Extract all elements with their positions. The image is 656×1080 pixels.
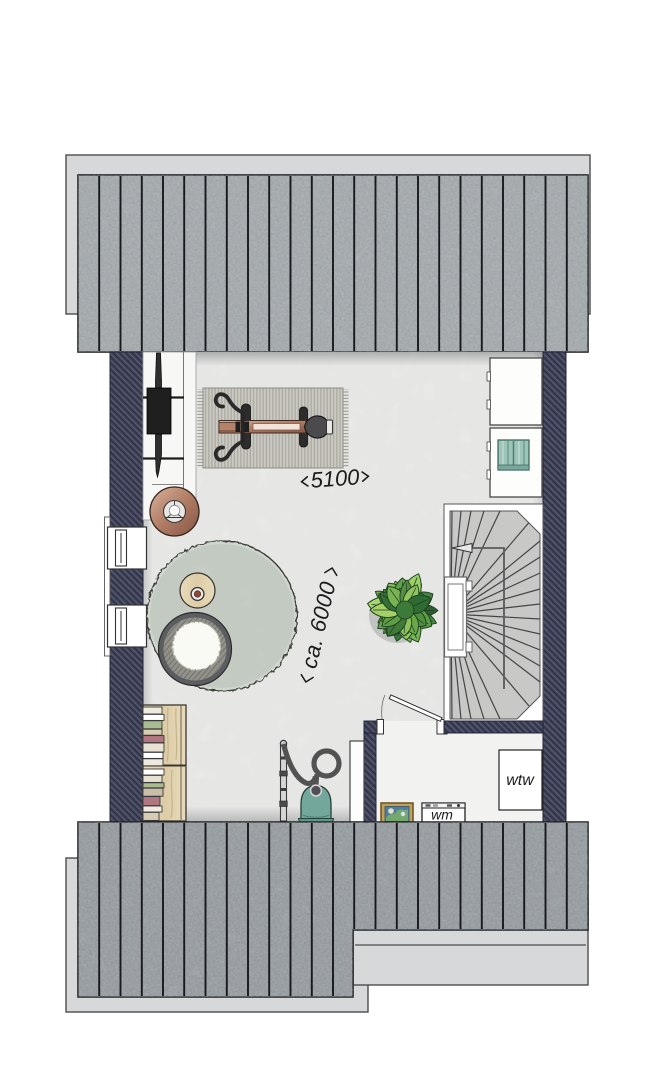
svg-text:wtw: wtw: [506, 772, 535, 789]
svg-text:5100: 5100: [310, 464, 361, 492]
svg-text:wm: wm: [431, 807, 453, 823]
